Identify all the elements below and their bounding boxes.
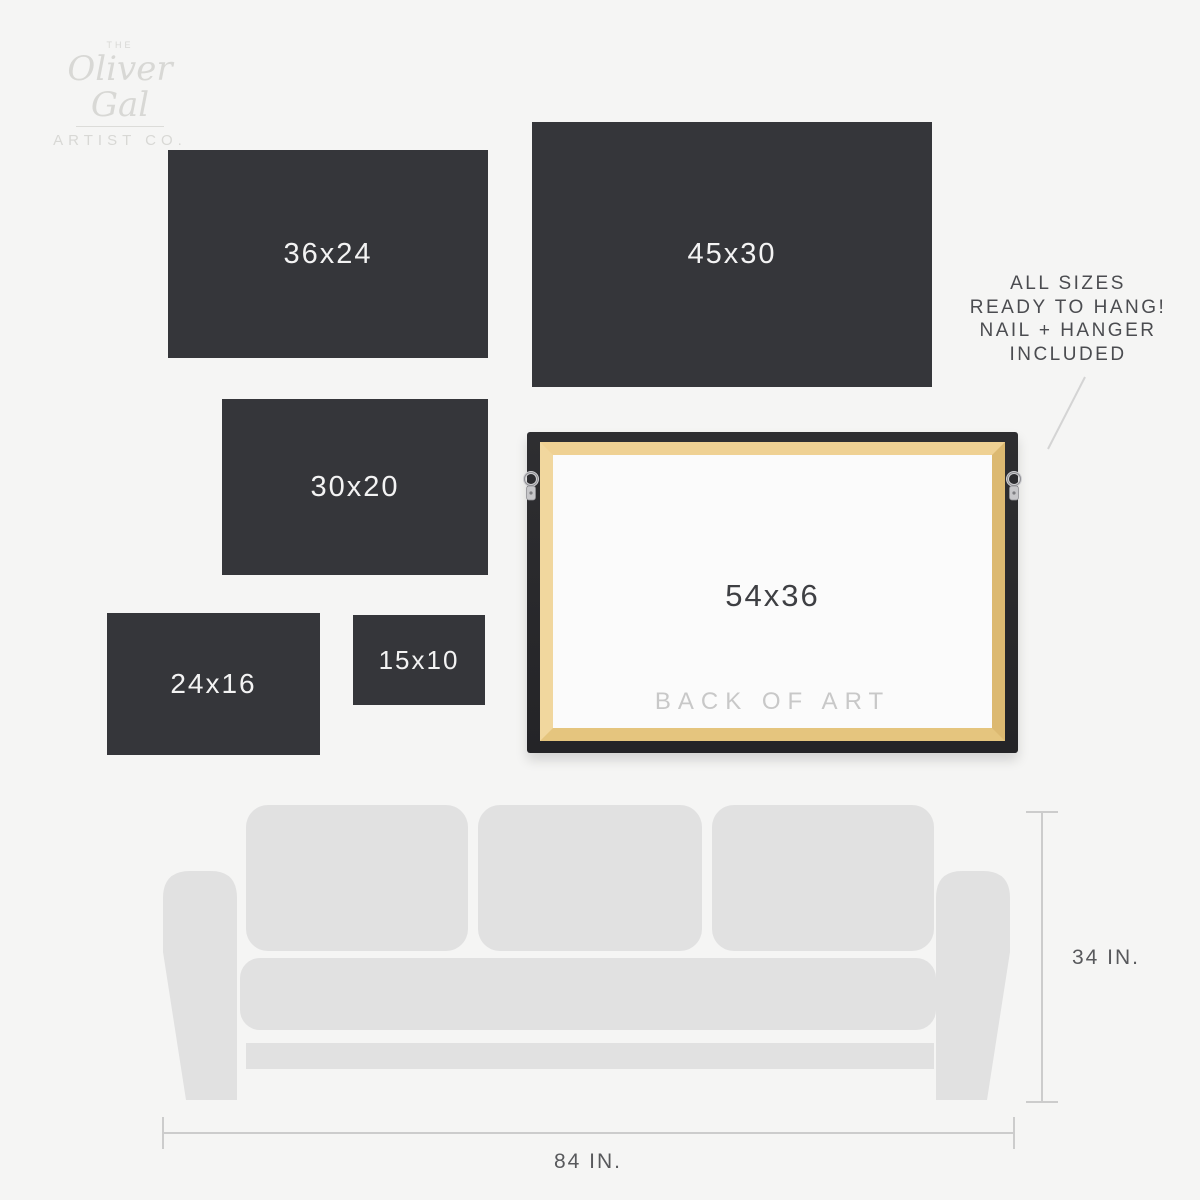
brand-logo-divider	[76, 126, 164, 127]
sofa-height-label: 34 IN.	[1056, 946, 1156, 970]
size-box-45x30: 45x30	[532, 122, 932, 387]
sofa-seat-cushion	[240, 958, 936, 1030]
size-label: 30x20	[310, 471, 399, 504]
height-dimension-line	[1026, 812, 1058, 1102]
back-of-art-label: BACK OF ART	[527, 688, 1018, 716]
brand-logo-name: Oliver Gal	[36, 51, 204, 123]
d-ring-hanger-icon	[1004, 468, 1024, 510]
brand-logo: THE Oliver Gal ARTIST CO.	[36, 40, 204, 149]
size-label: 45x30	[687, 238, 776, 271]
sofa-width-label: 84 IN.	[488, 1150, 688, 1174]
size-box-30x20: 30x20	[222, 399, 488, 575]
size-box-15x10: 15x10	[353, 615, 485, 705]
note-line: ALL SIZES	[944, 272, 1192, 296]
note-line: INCLUDED	[944, 343, 1192, 367]
size-box-24x16: 24x16	[107, 613, 320, 755]
sofa-back-cushion	[712, 805, 934, 951]
sofa-left-armrest	[163, 871, 237, 1100]
size-label: 36x24	[283, 238, 372, 271]
width-dimension-line	[163, 1117, 1014, 1149]
sofa-back-cushion	[246, 805, 468, 951]
sofa-right-armrest	[936, 871, 1010, 1100]
sofa-back-cushion	[478, 805, 702, 951]
sofa-illustration	[163, 805, 1010, 1100]
sofa-base-rail	[246, 1043, 934, 1069]
note-line: READY TO HANG!	[944, 296, 1192, 320]
brand-logo-subtitle: ARTIST CO.	[36, 132, 204, 149]
framed-canvas-back: 54x36 BACK OF ART	[527, 432, 1018, 753]
leader-line	[1048, 377, 1085, 449]
frame-size-label: 54x36	[527, 578, 1018, 614]
d-ring-hanger-icon	[521, 468, 541, 510]
size-label: 15x10	[379, 645, 460, 676]
ready-to-hang-note: ALL SIZES READY TO HANG! NAIL + HANGER I…	[944, 272, 1192, 366]
size-box-36x24: 36x24	[168, 150, 488, 358]
note-line: NAIL + HANGER	[944, 319, 1192, 343]
size-label: 24x16	[170, 668, 256, 700]
